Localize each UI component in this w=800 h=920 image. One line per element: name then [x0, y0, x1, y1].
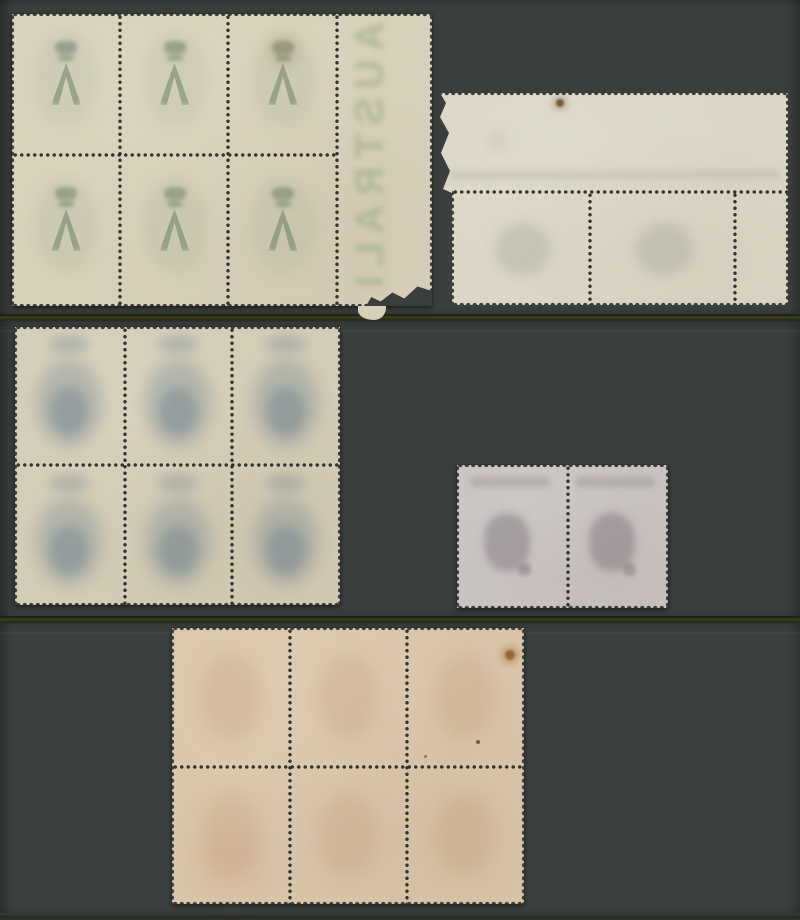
strip-divider-2: [0, 616, 800, 623]
photo-bottom-edge: [0, 913, 800, 920]
film-strip-1: [0, 0, 800, 314]
film-strip-2: [0, 320, 800, 616]
strip-divider-1: [0, 314, 800, 321]
photo-root: AUSTRALIA: [0, 0, 800, 920]
strip-divider-echo-1: [0, 330, 800, 332]
strip-divider-echo-2: [0, 632, 800, 634]
film-strip-3: [0, 622, 800, 913]
